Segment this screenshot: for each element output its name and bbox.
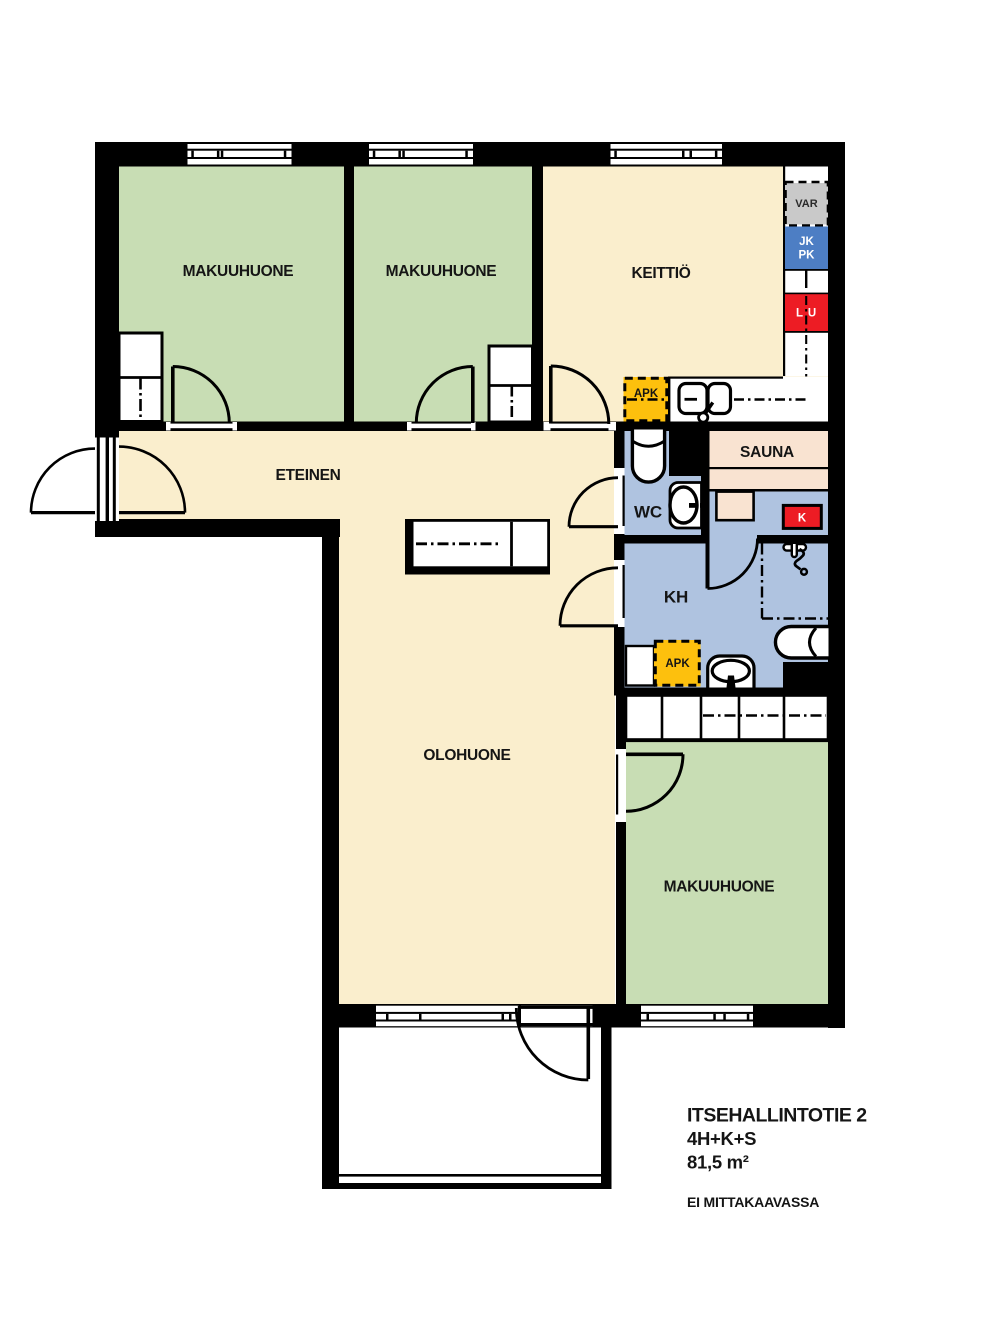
svg-text:OLOHUONE: OLOHUONE [423, 747, 510, 764]
svg-text:ETEINEN: ETEINEN [275, 467, 340, 484]
svg-text:PK: PK [799, 249, 816, 261]
svg-text:APK: APK [634, 388, 659, 400]
svg-text:APK: APK [665, 658, 690, 670]
svg-text:81,5 m²: 81,5 m² [687, 1152, 749, 1173]
svg-text:KEITTIÖ: KEITTIÖ [631, 265, 690, 282]
svg-text:WC: WC [634, 503, 662, 522]
svg-text:MAKUUHUONE: MAKUUHUONE [386, 263, 497, 280]
svg-text:MAKUUHUONE: MAKUUHUONE [183, 263, 294, 280]
svg-text:EI MITTAKAAVASSA: EI MITTAKAAVASSA [687, 1194, 819, 1210]
svg-text:JK: JK [799, 236, 814, 248]
svg-text:K: K [798, 513, 807, 525]
svg-text:L: L [796, 308, 803, 320]
svg-text:MAKUUHUONE: MAKUUHUONE [664, 879, 775, 896]
svg-text:SAUNA: SAUNA [740, 444, 794, 461]
svg-text:KH: KH [664, 588, 688, 607]
svg-text:ITSEHALLINTOTIE 2: ITSEHALLINTOTIE 2 [687, 1105, 867, 1127]
svg-text:VAR: VAR [795, 198, 817, 210]
svg-text:U: U [808, 308, 816, 320]
svg-text:4H+K+S: 4H+K+S [687, 1128, 756, 1149]
